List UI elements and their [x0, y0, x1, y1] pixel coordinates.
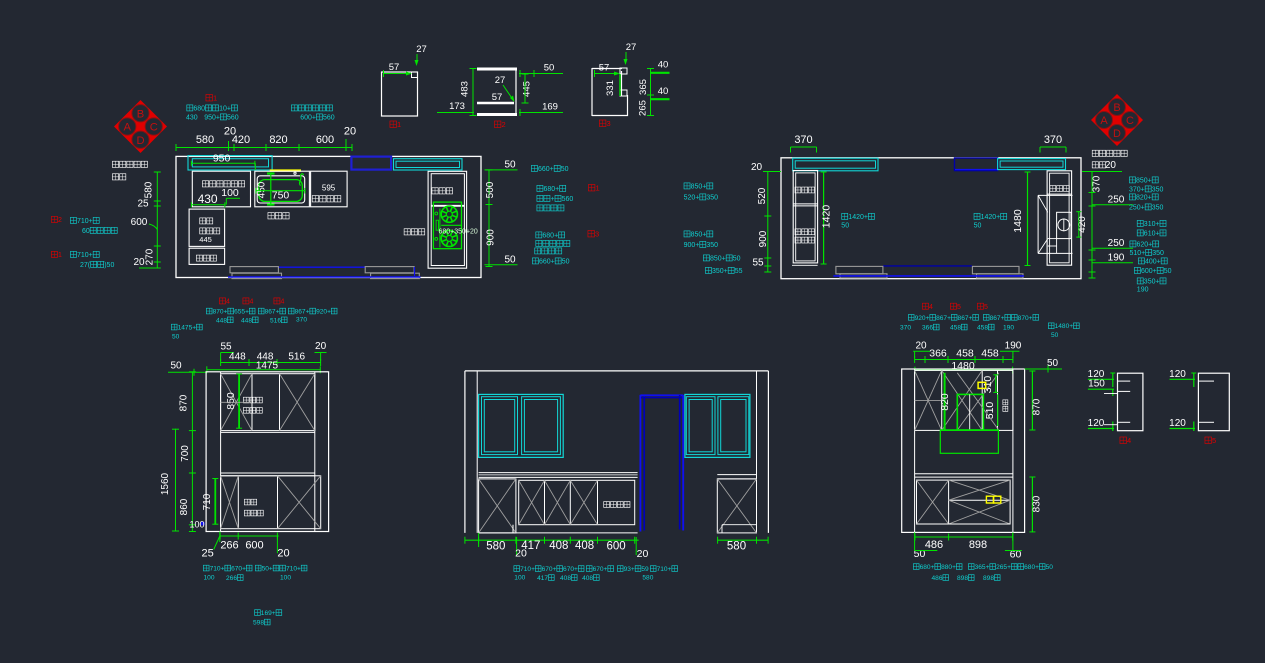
- svg-text:3: 3: [595, 230, 599, 239]
- svg-text:27(: 27(: [80, 262, 91, 269]
- svg-text:50: 50: [841, 223, 849, 230]
- svg-text:100: 100: [280, 575, 291, 582]
- svg-text:20: 20: [637, 548, 649, 560]
- svg-text:900: 900: [758, 230, 769, 247]
- svg-text:600: 600: [131, 217, 148, 228]
- svg-text:510: 510: [984, 402, 996, 420]
- svg-text:445: 445: [199, 235, 212, 244]
- svg-text:55: 55: [735, 268, 743, 275]
- svg-text:350+: 350+: [712, 268, 728, 275]
- svg-text:820: 820: [939, 393, 951, 411]
- svg-text:560: 560: [562, 196, 574, 203]
- svg-text:1420+: 1420+: [981, 214, 1001, 221]
- svg-text:50: 50: [1051, 332, 1059, 339]
- svg-text:710: 710: [202, 493, 213, 510]
- svg-text:365: 365: [638, 79, 649, 95]
- svg-text:350: 350: [1152, 187, 1164, 194]
- svg-text:150: 150: [1088, 379, 1105, 390]
- svg-text:+: +: [551, 196, 555, 203]
- svg-text:50: 50: [1047, 358, 1059, 369]
- svg-text:660+: 660+: [538, 166, 554, 173]
- svg-text:265: 265: [638, 100, 649, 116]
- svg-text:560: 560: [323, 115, 335, 122]
- svg-text:870+: 870+: [1018, 315, 1033, 322]
- svg-text:1420+: 1420+: [848, 214, 868, 221]
- svg-text:50: 50: [544, 63, 555, 74]
- svg-text:1: 1: [58, 252, 62, 259]
- svg-text:50: 50: [1164, 268, 1172, 275]
- svg-text:10+: 10+: [219, 106, 231, 113]
- svg-text:5: 5: [1212, 436, 1216, 445]
- svg-text:700: 700: [180, 445, 191, 462]
- svg-text:860: 860: [179, 498, 190, 515]
- svg-text:680: 680: [193, 106, 205, 113]
- svg-text:4: 4: [250, 299, 254, 306]
- svg-text:458: 458: [981, 348, 999, 360]
- svg-text:850+: 850+: [691, 232, 707, 239]
- svg-text:600+: 600+: [1141, 268, 1157, 275]
- svg-text:1: 1: [397, 120, 401, 129]
- svg-text:867+: 867+: [295, 309, 310, 316]
- svg-text:4: 4: [1127, 436, 1131, 445]
- svg-text:408: 408: [560, 575, 571, 582]
- svg-text:169: 169: [542, 102, 558, 113]
- svg-text:331: 331: [605, 80, 616, 96]
- svg-text:920+: 920+: [915, 315, 930, 322]
- svg-text:710+: 710+: [520, 566, 535, 573]
- svg-text:40: 40: [658, 86, 669, 97]
- svg-text:680+: 680+: [544, 186, 560, 193]
- svg-text:100: 100: [514, 575, 525, 582]
- svg-text:867+: 867+: [990, 315, 1005, 322]
- svg-text:59: 59: [641, 566, 649, 573]
- svg-text:610+: 610+: [1144, 231, 1160, 238]
- svg-text:57: 57: [492, 92, 503, 103]
- svg-text:867+: 867+: [265, 309, 280, 316]
- svg-text:57: 57: [389, 62, 400, 73]
- svg-text:20: 20: [277, 548, 289, 560]
- svg-text:B: B: [1113, 102, 1120, 114]
- svg-text:350+: 350+: [1144, 279, 1160, 286]
- svg-text:900: 900: [486, 229, 497, 246]
- svg-text:580: 580: [196, 134, 214, 146]
- svg-text:50+: 50+: [262, 566, 273, 573]
- svg-text:600: 600: [316, 134, 334, 146]
- svg-text:950: 950: [213, 152, 231, 164]
- svg-text:670+: 670+: [593, 566, 608, 573]
- svg-text:710+: 710+: [286, 566, 301, 573]
- svg-text:93+: 93+: [624, 566, 635, 573]
- svg-text:C: C: [1126, 115, 1134, 127]
- svg-text:655+: 655+: [234, 309, 249, 316]
- svg-text:600+: 600+: [300, 115, 316, 122]
- svg-text:169+: 169+: [261, 610, 276, 617]
- svg-text:850: 850: [225, 392, 237, 410]
- svg-text:900+: 900+: [684, 242, 700, 249]
- svg-text:265+: 265+: [996, 564, 1011, 571]
- svg-text:370+: 370+: [1129, 187, 1145, 194]
- svg-text:448: 448: [241, 317, 252, 324]
- svg-text:1560: 1560: [160, 472, 171, 495]
- svg-text:20: 20: [515, 548, 527, 560]
- svg-text:580: 580: [727, 541, 746, 553]
- svg-text:A: A: [1100, 115, 1108, 127]
- svg-text:400+: 400+: [1145, 259, 1161, 266]
- svg-text:486: 486: [925, 539, 943, 551]
- svg-text:408: 408: [575, 540, 594, 552]
- svg-text:50: 50: [733, 256, 741, 263]
- svg-text:50: 50: [504, 160, 516, 171]
- svg-text:20: 20: [224, 126, 236, 138]
- svg-text:250+: 250+: [1129, 205, 1145, 212]
- svg-text:850+: 850+: [710, 256, 726, 263]
- svg-text:660+: 660+: [539, 259, 555, 266]
- svg-text:370: 370: [1092, 175, 1103, 192]
- svg-text:820: 820: [269, 134, 287, 146]
- svg-text:417: 417: [537, 575, 548, 582]
- svg-text:370: 370: [794, 134, 812, 146]
- svg-text:898: 898: [957, 575, 968, 582]
- svg-text:520: 520: [757, 187, 768, 204]
- svg-text:516: 516: [288, 352, 305, 363]
- svg-text:867+: 867+: [958, 315, 973, 322]
- svg-text:1: 1: [596, 184, 600, 193]
- svg-text:430: 430: [186, 115, 198, 122]
- svg-text:580: 580: [486, 541, 505, 553]
- svg-text:448: 448: [216, 317, 227, 324]
- svg-text:120: 120: [1169, 418, 1186, 429]
- svg-text:710+: 710+: [77, 252, 93, 259]
- svg-text:580: 580: [144, 181, 155, 198]
- svg-text:1480: 1480: [1012, 209, 1024, 233]
- svg-text:20: 20: [133, 257, 145, 268]
- svg-text:173: 173: [449, 101, 465, 112]
- svg-text:C: C: [150, 122, 158, 134]
- svg-text:670+: 670+: [542, 566, 557, 573]
- svg-text:350: 350: [1152, 250, 1164, 257]
- svg-text:1420: 1420: [820, 205, 832, 229]
- svg-text:190: 190: [1137, 287, 1149, 294]
- svg-text:120: 120: [1088, 418, 1105, 429]
- svg-text:250: 250: [1108, 238, 1125, 249]
- svg-text:830: 830: [1032, 495, 1043, 512]
- svg-text:190: 190: [1108, 253, 1125, 264]
- svg-text:266: 266: [226, 575, 237, 582]
- svg-text:25: 25: [137, 199, 149, 210]
- svg-text:850+: 850+: [691, 184, 707, 191]
- svg-text:365+: 365+: [975, 564, 990, 571]
- svg-text:870: 870: [1032, 398, 1043, 415]
- svg-text:20: 20: [915, 341, 927, 352]
- svg-text:120: 120: [1169, 369, 1186, 380]
- svg-text:5: 5: [957, 304, 961, 311]
- svg-text:57: 57: [599, 63, 610, 74]
- svg-text:670+: 670+: [231, 566, 246, 573]
- svg-text:50: 50: [974, 223, 982, 230]
- svg-text:5: 5: [984, 304, 988, 311]
- svg-text:870+: 870+: [213, 309, 228, 316]
- svg-text:920+: 920+: [316, 309, 331, 316]
- svg-text:820+: 820+: [1136, 195, 1152, 202]
- svg-text:458: 458: [950, 325, 961, 332]
- svg-text:458: 458: [977, 325, 988, 332]
- svg-text:4: 4: [281, 299, 285, 306]
- svg-text:448: 448: [229, 352, 246, 363]
- svg-text:350: 350: [706, 195, 718, 202]
- svg-text:50: 50: [1046, 564, 1054, 571]
- svg-text:408: 408: [549, 540, 568, 552]
- svg-text:350: 350: [1152, 205, 1164, 212]
- svg-text:750: 750: [272, 190, 290, 202]
- svg-text:350: 350: [706, 242, 718, 249]
- svg-text:27: 27: [416, 44, 427, 55]
- svg-text:50: 50: [170, 361, 182, 372]
- svg-text:20: 20: [344, 126, 356, 138]
- svg-text:620+: 620+: [1137, 242, 1153, 249]
- svg-text:870: 870: [179, 394, 190, 411]
- svg-text:27: 27: [626, 42, 637, 53]
- svg-text:1: 1: [213, 94, 217, 103]
- svg-text:600: 600: [245, 540, 263, 552]
- svg-text:370: 370: [1044, 134, 1062, 146]
- svg-text:50: 50: [172, 334, 180, 341]
- svg-text:500: 500: [485, 181, 496, 198]
- svg-text:680+350+20: 680+350+20: [439, 229, 478, 236]
- svg-text:370: 370: [900, 325, 911, 332]
- svg-text:55: 55: [752, 258, 764, 269]
- svg-text:25: 25: [201, 548, 213, 560]
- svg-text:458: 458: [956, 348, 974, 360]
- svg-text:880+: 880+: [941, 564, 956, 571]
- svg-text:898: 898: [969, 539, 987, 551]
- svg-text:50: 50: [561, 166, 569, 173]
- svg-text:867+: 867+: [936, 315, 951, 322]
- svg-text:370: 370: [296, 316, 307, 323]
- svg-text:710+: 710+: [657, 566, 672, 573]
- svg-text:40: 40: [658, 60, 669, 71]
- svg-text:4: 4: [226, 299, 230, 306]
- svg-text:4: 4: [929, 304, 933, 311]
- svg-text:)50: )50: [104, 262, 114, 269]
- svg-text:950+: 950+: [204, 115, 220, 122]
- svg-text:266: 266: [220, 540, 238, 552]
- svg-text:270: 270: [145, 248, 156, 265]
- svg-text:510+: 510+: [1130, 250, 1146, 257]
- svg-text:520+: 520+: [684, 195, 700, 202]
- svg-text:670+: 670+: [563, 566, 578, 573]
- svg-text:1480+: 1480+: [1055, 323, 1074, 330]
- svg-text:310: 310: [982, 376, 994, 394]
- svg-text:2: 2: [58, 217, 62, 224]
- svg-text:60: 60: [82, 228, 90, 235]
- svg-text:680+: 680+: [542, 233, 558, 240]
- svg-text:1475+: 1475+: [178, 325, 197, 332]
- svg-text:598: 598: [253, 620, 264, 627]
- svg-text:430: 430: [198, 192, 218, 206]
- svg-text:3: 3: [607, 119, 611, 128]
- svg-text:680+: 680+: [1024, 564, 1039, 571]
- svg-text:710+: 710+: [77, 218, 93, 225]
- svg-text:D: D: [136, 135, 144, 147]
- svg-text:250: 250: [1108, 195, 1125, 206]
- svg-text:450: 450: [257, 181, 268, 198]
- svg-text:190: 190: [1005, 341, 1022, 352]
- svg-text:516: 516: [270, 317, 281, 324]
- svg-text:680+: 680+: [920, 564, 935, 571]
- svg-text:486: 486: [932, 575, 943, 582]
- svg-text:580: 580: [642, 575, 653, 582]
- svg-text:595: 595: [322, 184, 336, 193]
- svg-text:50: 50: [504, 254, 516, 265]
- svg-text:A: A: [124, 122, 132, 134]
- svg-text:100: 100: [221, 187, 239, 199]
- svg-text:20: 20: [1105, 160, 1117, 171]
- svg-text:190: 190: [1003, 325, 1014, 332]
- svg-text:366: 366: [922, 325, 933, 332]
- svg-text:366: 366: [929, 348, 947, 360]
- svg-text:898: 898: [983, 575, 994, 582]
- svg-text:2: 2: [502, 120, 506, 129]
- svg-text:408: 408: [582, 575, 593, 582]
- svg-text:20: 20: [751, 162, 763, 173]
- svg-text:710+: 710+: [210, 566, 225, 573]
- svg-text:850+: 850+: [1136, 178, 1152, 185]
- svg-text:B: B: [137, 108, 144, 120]
- svg-text:100: 100: [189, 520, 204, 530]
- svg-text:50: 50: [562, 259, 570, 266]
- svg-text:600: 600: [607, 541, 626, 553]
- svg-text:310+: 310+: [1144, 221, 1160, 228]
- svg-text:100: 100: [204, 575, 215, 582]
- svg-text:560: 560: [227, 115, 239, 122]
- svg-text:27: 27: [495, 75, 506, 86]
- svg-text:D: D: [1113, 128, 1121, 140]
- svg-text:445: 445: [522, 81, 533, 97]
- svg-text:483: 483: [460, 81, 471, 97]
- svg-text:20: 20: [315, 341, 327, 352]
- svg-text:50: 50: [914, 548, 926, 560]
